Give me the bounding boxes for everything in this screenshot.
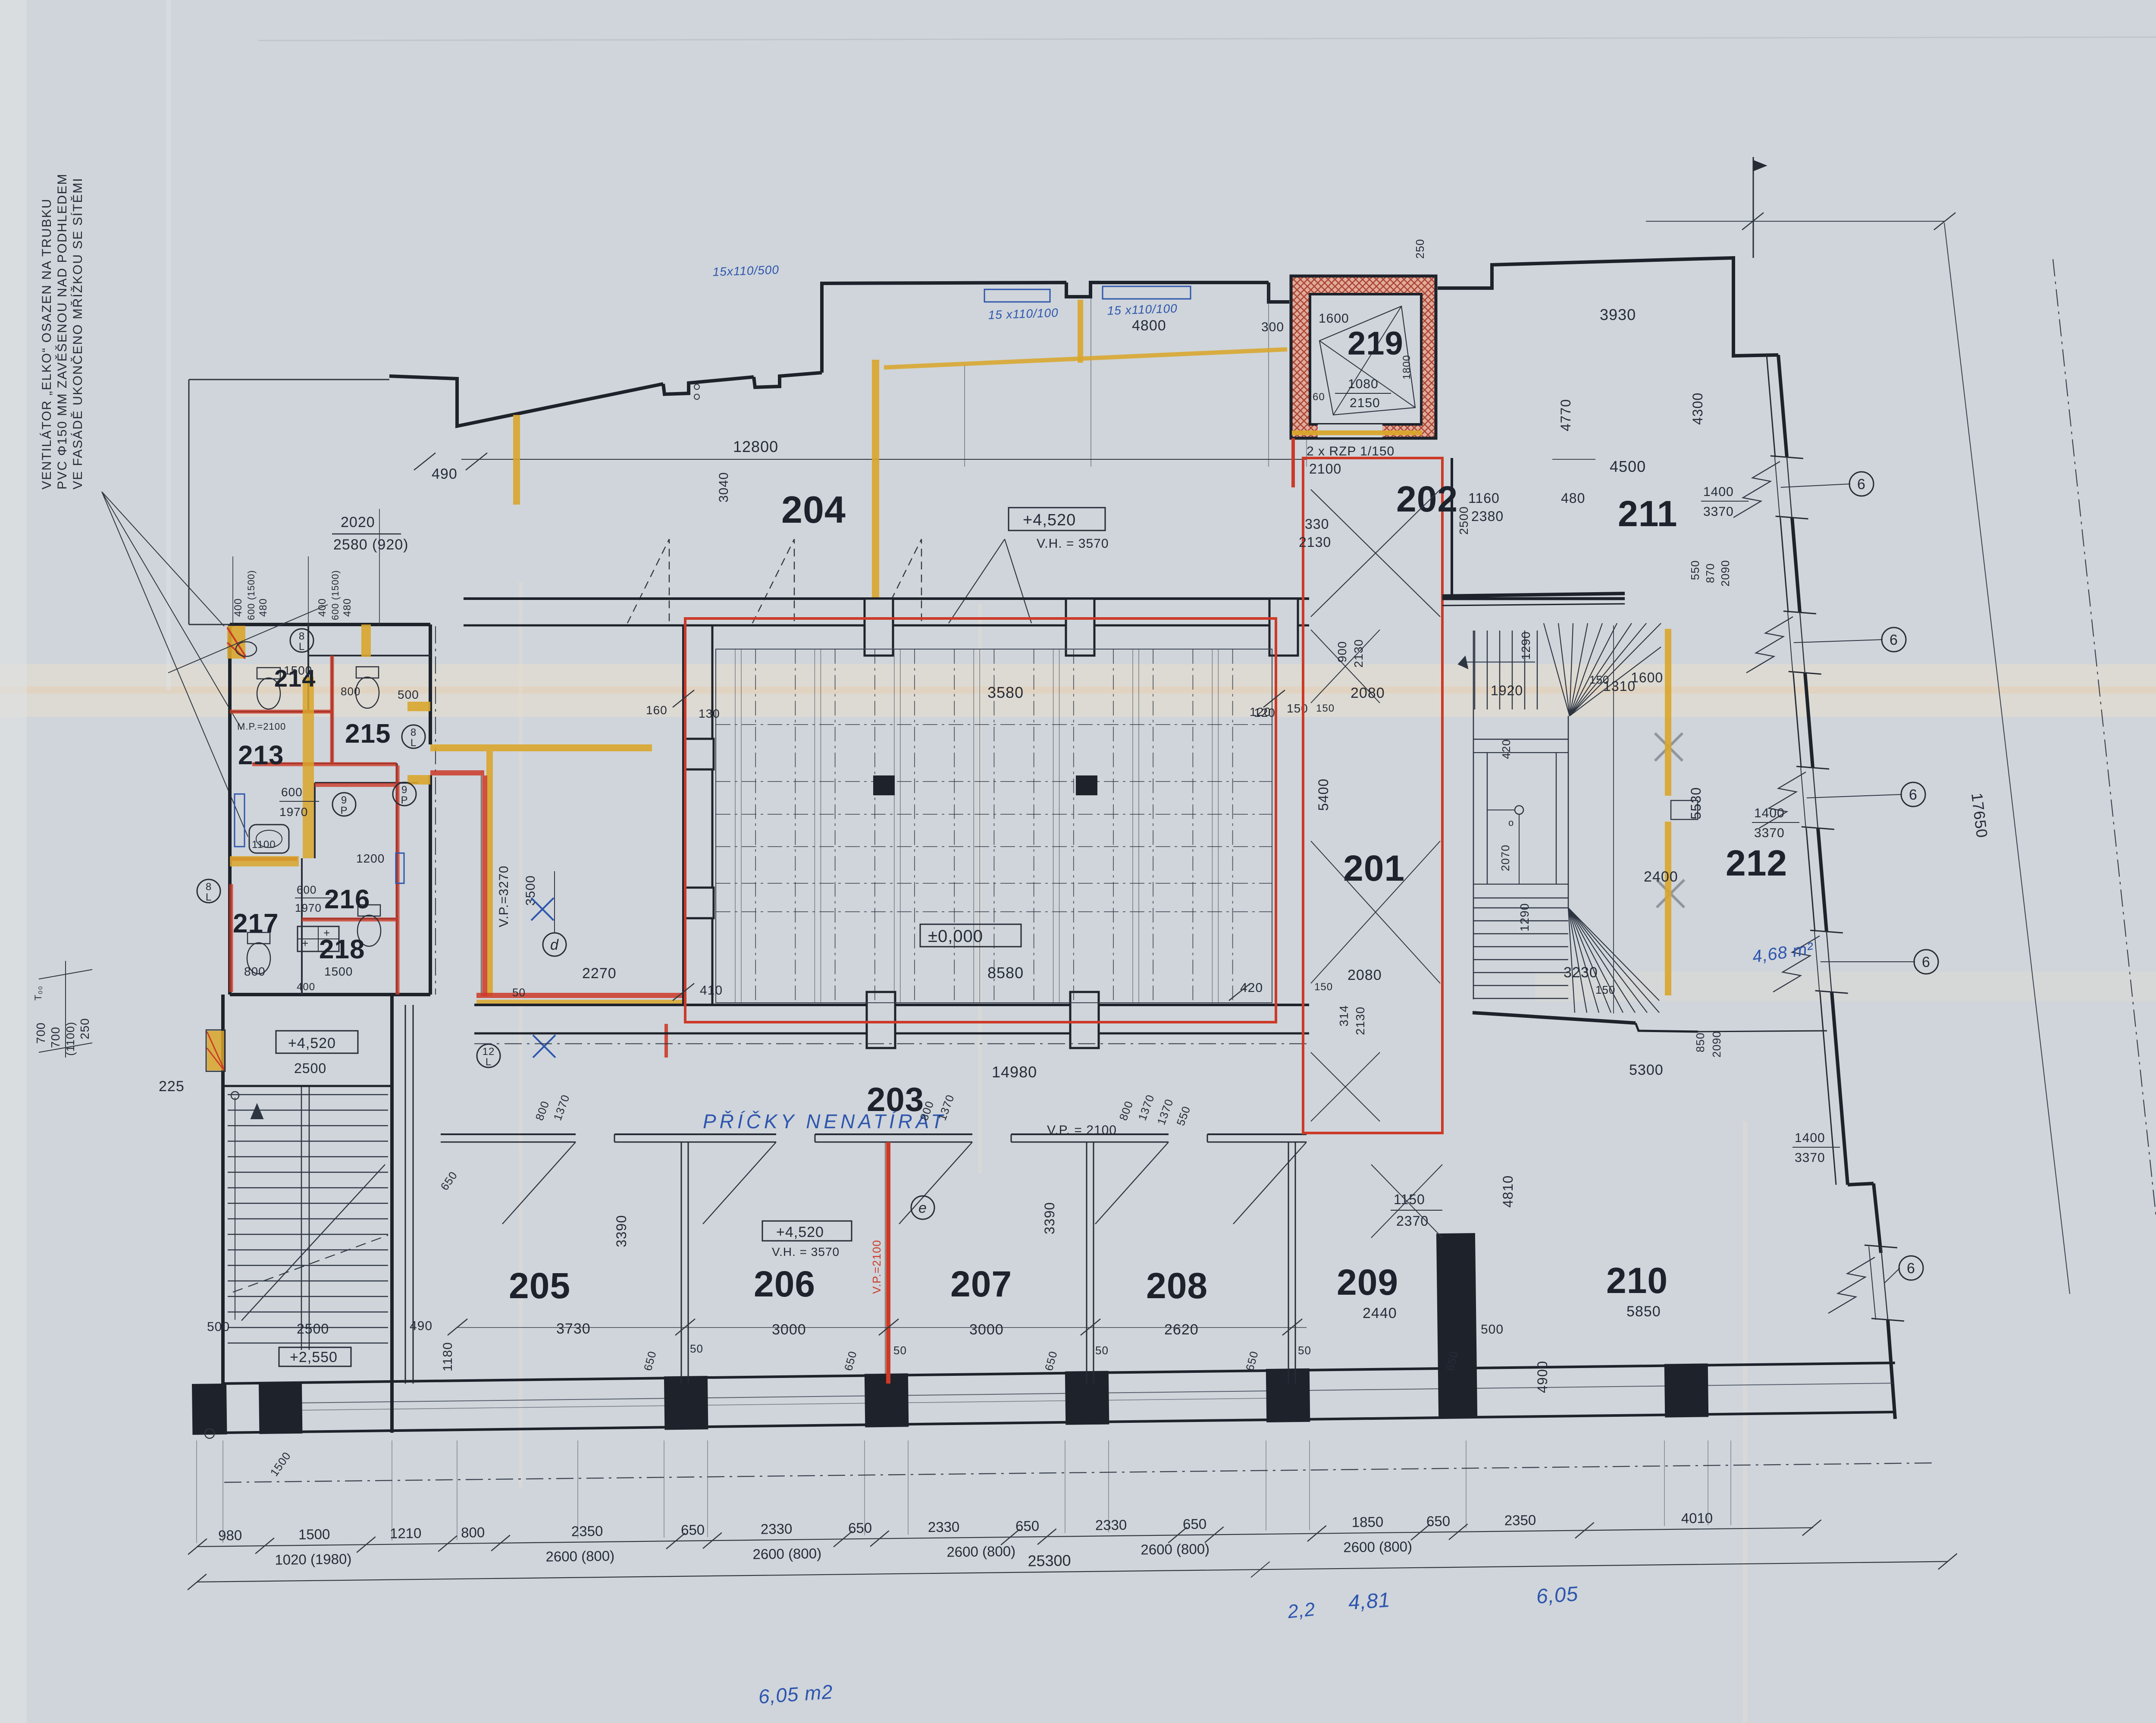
svg-text:2600 (800): 2600 (800) <box>946 1543 1015 1560</box>
svg-text:5850: 5850 <box>1626 1303 1661 1320</box>
svg-text:1100: 1100 <box>252 839 276 851</box>
svg-text:480: 480 <box>257 598 269 617</box>
svg-text:314: 314 <box>1337 1005 1351 1026</box>
svg-text:6: 6 <box>1922 954 1930 970</box>
svg-text:V.P. = 2100: V.P. = 2100 <box>1047 1123 1117 1137</box>
svg-text:V.H. = 3570: V.H. = 3570 <box>772 1245 840 1259</box>
svg-text:650: 650 <box>681 1522 705 1538</box>
svg-text:5300: 5300 <box>1629 1062 1664 1078</box>
svg-text:1290: 1290 <box>1519 631 1532 660</box>
svg-text:2070: 2070 <box>1499 844 1512 871</box>
svg-text:1600: 1600 <box>1319 311 1349 326</box>
svg-text:6: 6 <box>1890 632 1898 648</box>
svg-text:2620: 2620 <box>1164 1321 1199 1338</box>
svg-text:800: 800 <box>341 685 360 698</box>
svg-text:400: 400 <box>297 981 315 993</box>
svg-text:3370: 3370 <box>1703 505 1734 519</box>
svg-text:d: d <box>550 937 559 953</box>
svg-text:2350: 2350 <box>571 1523 603 1539</box>
svg-text:50: 50 <box>690 1342 703 1355</box>
svg-text:1290: 1290 <box>1518 903 1531 932</box>
svg-text:3580: 3580 <box>987 684 1024 701</box>
svg-text:980: 980 <box>218 1527 242 1544</box>
svg-text:o: o <box>1508 817 1514 828</box>
svg-text:600: 600 <box>281 785 303 799</box>
svg-text:8: 8 <box>206 881 212 893</box>
svg-text:250: 250 <box>1413 239 1426 259</box>
svg-text:400: 400 <box>232 598 244 617</box>
svg-text:P: P <box>401 794 408 806</box>
svg-text:2370: 2370 <box>1396 1213 1429 1229</box>
svg-text:2580 (920): 2580 (920) <box>333 537 408 553</box>
svg-text:210: 210 <box>1606 1260 1668 1301</box>
svg-text:2600 (800): 2600 (800) <box>1141 1541 1210 1558</box>
svg-text:6: 6 <box>1857 476 1866 493</box>
svg-text:3000: 3000 <box>969 1321 1004 1338</box>
svg-text:650: 650 <box>1426 1513 1450 1529</box>
svg-text:8: 8 <box>411 727 417 738</box>
svg-text:700: 700 <box>34 1022 47 1044</box>
svg-text:3390: 3390 <box>1042 1202 1057 1234</box>
svg-text:L: L <box>411 737 417 749</box>
svg-text:4770: 4770 <box>1558 399 1573 431</box>
svg-text:150: 150 <box>1287 702 1308 715</box>
svg-text:650: 650 <box>1015 1518 1039 1534</box>
svg-text:6: 6 <box>1909 787 1918 803</box>
svg-text:1600: 1600 <box>1631 670 1663 685</box>
svg-text:3230: 3230 <box>1564 964 1598 981</box>
svg-text:3370: 3370 <box>1795 1151 1825 1165</box>
svg-text:490: 490 <box>432 466 458 482</box>
svg-text:2020: 2020 <box>341 514 375 530</box>
svg-text:211: 211 <box>1618 493 1678 534</box>
svg-text:300: 300 <box>1261 320 1284 334</box>
svg-text:4300: 4300 <box>1690 392 1705 425</box>
svg-text:3000: 3000 <box>772 1321 806 1338</box>
svg-text:2080: 2080 <box>1351 685 1385 701</box>
svg-text:12800: 12800 <box>733 438 778 455</box>
svg-text:800: 800 <box>461 1524 485 1541</box>
svg-text:2600 (800): 2600 (800) <box>752 1545 821 1562</box>
svg-text:VE FASÁDĚ UKONČENO MŘÍŽKOU SE: VE FASÁDĚ UKONČENO MŘÍŽKOU SE SÍTĚMI <box>70 177 85 490</box>
svg-text:219: 219 <box>1347 325 1404 362</box>
svg-text:2600 (800): 2600 (800) <box>545 1548 614 1565</box>
svg-text:6,05: 6,05 <box>1536 1582 1579 1608</box>
svg-text:202: 202 <box>1396 479 1458 519</box>
svg-text:25300: 25300 <box>1028 1551 1071 1569</box>
svg-text:1400: 1400 <box>1703 485 1734 499</box>
svg-text:50: 50 <box>1095 1344 1109 1357</box>
svg-text:2500: 2500 <box>294 1061 326 1076</box>
svg-text:1500: 1500 <box>324 965 353 978</box>
svg-text:2400: 2400 <box>1644 869 1678 885</box>
svg-text:215: 215 <box>345 719 391 749</box>
svg-text:8: 8 <box>299 631 305 642</box>
svg-text:2600 (800): 2600 (800) <box>1343 1538 1412 1555</box>
svg-text:3930: 3930 <box>1600 306 1636 323</box>
svg-text:M.P.=2100: M.P.=2100 <box>237 721 286 732</box>
svg-text:4810: 4810 <box>1500 1175 1516 1208</box>
svg-text:550: 550 <box>1689 560 1702 580</box>
svg-text:150: 150 <box>1314 981 1333 993</box>
svg-text:1200: 1200 <box>356 852 385 865</box>
svg-text:4,81: 4,81 <box>1347 1588 1391 1614</box>
svg-text:1400: 1400 <box>1795 1131 1825 1145</box>
svg-text:+4,520: +4,520 <box>1023 511 1076 529</box>
svg-text:2100: 2100 <box>1309 461 1341 477</box>
svg-text:L: L <box>206 891 212 903</box>
svg-text:600 (1500): 600 (1500) <box>246 570 257 620</box>
svg-text:12: 12 <box>483 1046 495 1058</box>
svg-text:3040: 3040 <box>717 472 731 502</box>
svg-text:2330: 2330 <box>761 1521 793 1537</box>
svg-text:4800: 4800 <box>1132 317 1166 334</box>
svg-text:120: 120 <box>1254 706 1275 719</box>
svg-text:600 (1500): 600 (1500) <box>330 570 341 620</box>
svg-text:160: 160 <box>646 703 667 717</box>
svg-text:5530: 5530 <box>1688 787 1704 819</box>
svg-text:800: 800 <box>244 965 266 978</box>
svg-text:3390: 3390 <box>614 1215 629 1247</box>
svg-text:50: 50 <box>512 986 526 999</box>
svg-text:150: 150 <box>1589 673 1609 686</box>
svg-text:201: 201 <box>1343 848 1405 888</box>
svg-text:500: 500 <box>207 1320 230 1334</box>
svg-text:1800: 1800 <box>1401 355 1413 380</box>
svg-text:1080: 1080 <box>1348 377 1379 391</box>
svg-text:208: 208 <box>1146 1265 1208 1306</box>
svg-text:2 x RZP 1/150: 2 x RZP 1/150 <box>1307 444 1395 458</box>
svg-text:1400: 1400 <box>1754 806 1785 820</box>
svg-text:480: 480 <box>1561 490 1585 506</box>
svg-text:420: 420 <box>1240 981 1263 995</box>
svg-text:5400: 5400 <box>1316 778 1331 811</box>
svg-text:500: 500 <box>1481 1322 1504 1337</box>
svg-text:207: 207 <box>950 1264 1012 1304</box>
svg-text:2,2: 2,2 <box>1286 1599 1316 1623</box>
svg-text:50: 50 <box>1298 1344 1311 1357</box>
svg-text:1970: 1970 <box>295 901 322 914</box>
svg-text:1850: 1850 <box>1352 1514 1384 1530</box>
svg-text:1150: 1150 <box>1394 1192 1425 1207</box>
svg-text:50: 50 <box>893 1344 907 1357</box>
svg-text:650: 650 <box>1183 1516 1206 1532</box>
svg-text:1500: 1500 <box>284 664 312 677</box>
svg-text:1020 (1980): 1020 (1980) <box>275 1551 351 1568</box>
svg-text:2330: 2330 <box>1095 1517 1127 1533</box>
svg-text:V.P.=3270: V.P.=3270 <box>497 866 511 927</box>
svg-text:±0,000: ±0,000 <box>928 927 983 946</box>
svg-text:2500: 2500 <box>297 1321 329 1337</box>
svg-text:L: L <box>299 641 305 653</box>
svg-text:VENTILÁTOR „ELKO“ OSAZEN NA TR: VENTILÁTOR „ELKO“ OSAZEN NA TRUBKU <box>40 198 54 490</box>
svg-text:1180: 1180 <box>441 1342 455 1371</box>
svg-text:870: 870 <box>1704 563 1717 583</box>
svg-text:212: 212 <box>1726 843 1787 883</box>
svg-text:213: 213 <box>238 741 284 770</box>
svg-text:2130: 2130 <box>1352 639 1365 668</box>
svg-text:T₀₀: T₀₀ <box>33 985 44 1001</box>
svg-text:1160: 1160 <box>1468 490 1500 506</box>
svg-text:P: P <box>340 805 348 816</box>
svg-text:2350: 2350 <box>1504 1512 1536 1528</box>
svg-text:2270: 2270 <box>582 965 617 982</box>
svg-text:850: 850 <box>1694 1033 1707 1052</box>
svg-text:60: 60 <box>1313 391 1325 403</box>
svg-text:2330: 2330 <box>928 1519 960 1535</box>
svg-text:410: 410 <box>700 983 723 998</box>
svg-text:420: 420 <box>1500 739 1513 759</box>
svg-text:650: 650 <box>848 1520 872 1536</box>
svg-text:15 x110/100: 15 x110/100 <box>1107 301 1178 317</box>
svg-text:204: 204 <box>781 488 846 531</box>
svg-text:+4,520: +4,520 <box>776 1224 824 1240</box>
svg-text:2130: 2130 <box>1299 534 1331 550</box>
svg-text:9: 9 <box>341 794 347 806</box>
svg-text:218: 218 <box>319 935 365 964</box>
svg-text:15 x110/100: 15 x110/100 <box>988 306 1059 322</box>
svg-text:1920: 1920 <box>1491 683 1523 698</box>
svg-text:1970: 1970 <box>279 805 308 819</box>
svg-text:+: + <box>302 937 309 950</box>
svg-text:2440: 2440 <box>1363 1305 1397 1321</box>
svg-text:500: 500 <box>398 688 419 701</box>
svg-text:400: 400 <box>317 598 328 617</box>
svg-text:2380: 2380 <box>1471 508 1504 524</box>
svg-text:130: 130 <box>699 707 720 720</box>
svg-text:3370: 3370 <box>1754 826 1785 840</box>
svg-text:600: 600 <box>297 883 317 896</box>
svg-text:2130: 2130 <box>1354 1007 1367 1035</box>
svg-text:150: 150 <box>1595 983 1615 996</box>
svg-text:330: 330 <box>1305 516 1329 532</box>
svg-text:e: e <box>918 1200 927 1216</box>
svg-text:14980: 14980 <box>992 1063 1037 1081</box>
svg-text:9: 9 <box>401 784 407 796</box>
svg-text:PŘÍČKY NENATÍRAT: PŘÍČKY NENATÍRAT <box>703 1110 946 1133</box>
svg-text:150: 150 <box>1316 703 1335 714</box>
svg-text:2090: 2090 <box>1710 1031 1723 1058</box>
svg-text:2080: 2080 <box>1347 967 1382 983</box>
svg-text:206: 206 <box>754 1264 815 1304</box>
svg-text:480: 480 <box>342 598 353 617</box>
svg-text:+2,550: +2,550 <box>290 1349 338 1365</box>
svg-text:(1100): (1100) <box>64 1022 77 1056</box>
svg-text:L: L <box>486 1056 492 1068</box>
svg-text:V.H. = 3570: V.H. = 3570 <box>1037 537 1109 551</box>
svg-text:4900: 4900 <box>1535 1361 1550 1393</box>
svg-text:PVC Φ150 MM ZAVĚŠENOU NAD PODH: PVC Φ150 MM ZAVĚŠENOU NAD PODHLEDEM <box>55 173 69 490</box>
svg-text:700: 700 <box>49 1026 62 1048</box>
svg-text:4500: 4500 <box>1610 458 1646 475</box>
svg-text:8580: 8580 <box>987 964 1024 982</box>
svg-text:216: 216 <box>324 885 370 914</box>
svg-text:205: 205 <box>509 1265 570 1306</box>
svg-text:V.P.=2100: V.P.=2100 <box>870 1240 883 1294</box>
svg-text:6: 6 <box>1907 1260 1915 1277</box>
svg-text:250: 250 <box>78 1018 91 1039</box>
svg-text:2090: 2090 <box>1719 560 1732 587</box>
svg-text:15x110/500: 15x110/500 <box>712 263 779 279</box>
svg-text:900: 900 <box>1335 641 1349 662</box>
svg-text:3730: 3730 <box>556 1321 591 1337</box>
svg-text:225: 225 <box>159 1078 185 1095</box>
svg-text:209: 209 <box>1337 1262 1398 1302</box>
svg-text:217: 217 <box>233 909 279 938</box>
svg-text:1210: 1210 <box>390 1525 422 1541</box>
svg-text:2150: 2150 <box>1350 396 1380 410</box>
svg-text:1500: 1500 <box>298 1526 330 1542</box>
svg-text:+4,520: +4,520 <box>288 1035 336 1051</box>
svg-text:2500: 2500 <box>1457 506 1470 535</box>
